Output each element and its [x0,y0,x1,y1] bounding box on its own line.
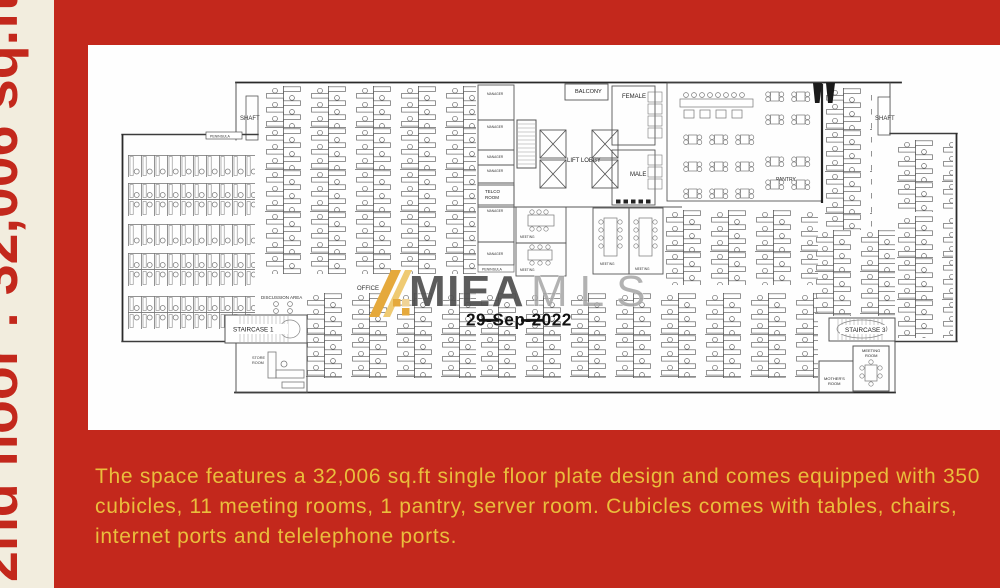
svg-text:MANAGER: MANAGER [487,92,504,96]
svg-text:MANAGER: MANAGER [487,169,504,173]
svg-text:ROOM: ROOM [485,195,499,200]
svg-text:LIFT LOBBY: LIFT LOBBY [567,158,601,164]
svg-text:2nd floor : 32,006 sq.ft: 2nd floor : 32,006 sq.ft [0,0,29,582]
svg-text:MALE: MALE [630,172,646,178]
svg-text:MANAGER: MANAGER [487,209,504,213]
svg-text:ROOM: ROOM [865,353,877,358]
svg-text:OFFICE: OFFICE [357,286,379,292]
svg-text:TELCO: TELCO [485,189,501,194]
svg-text:MANAGER: MANAGER [487,125,504,129]
svg-text:MEETING: MEETING [520,235,535,239]
svg-text:BALCONY: BALCONY [575,89,602,95]
svg-text:PENINSULA: PENINSULA [210,135,231,139]
svg-text:ROOM: ROOM [252,361,264,365]
svg-text:STAIRCASE 3: STAIRCASE 3 [845,327,886,334]
svg-text:ROOM: ROOM [828,381,840,386]
svg-text:MANAGER: MANAGER [487,252,504,256]
svg-text:SHAFT: SHAFT [240,116,260,122]
svg-text:MANAGER: MANAGER [487,155,504,159]
svg-text:SHAFT: SHAFT [875,116,895,122]
svg-text:MEETING: MEETING [600,262,615,266]
svg-text:FEMALE: FEMALE [622,94,646,100]
svg-text:STORE: STORE [252,356,265,360]
svg-text:STAIRCASE 1: STAIRCASE 1 [233,327,274,334]
svg-text:DISCUSSION AREA: DISCUSSION AREA [261,295,302,300]
